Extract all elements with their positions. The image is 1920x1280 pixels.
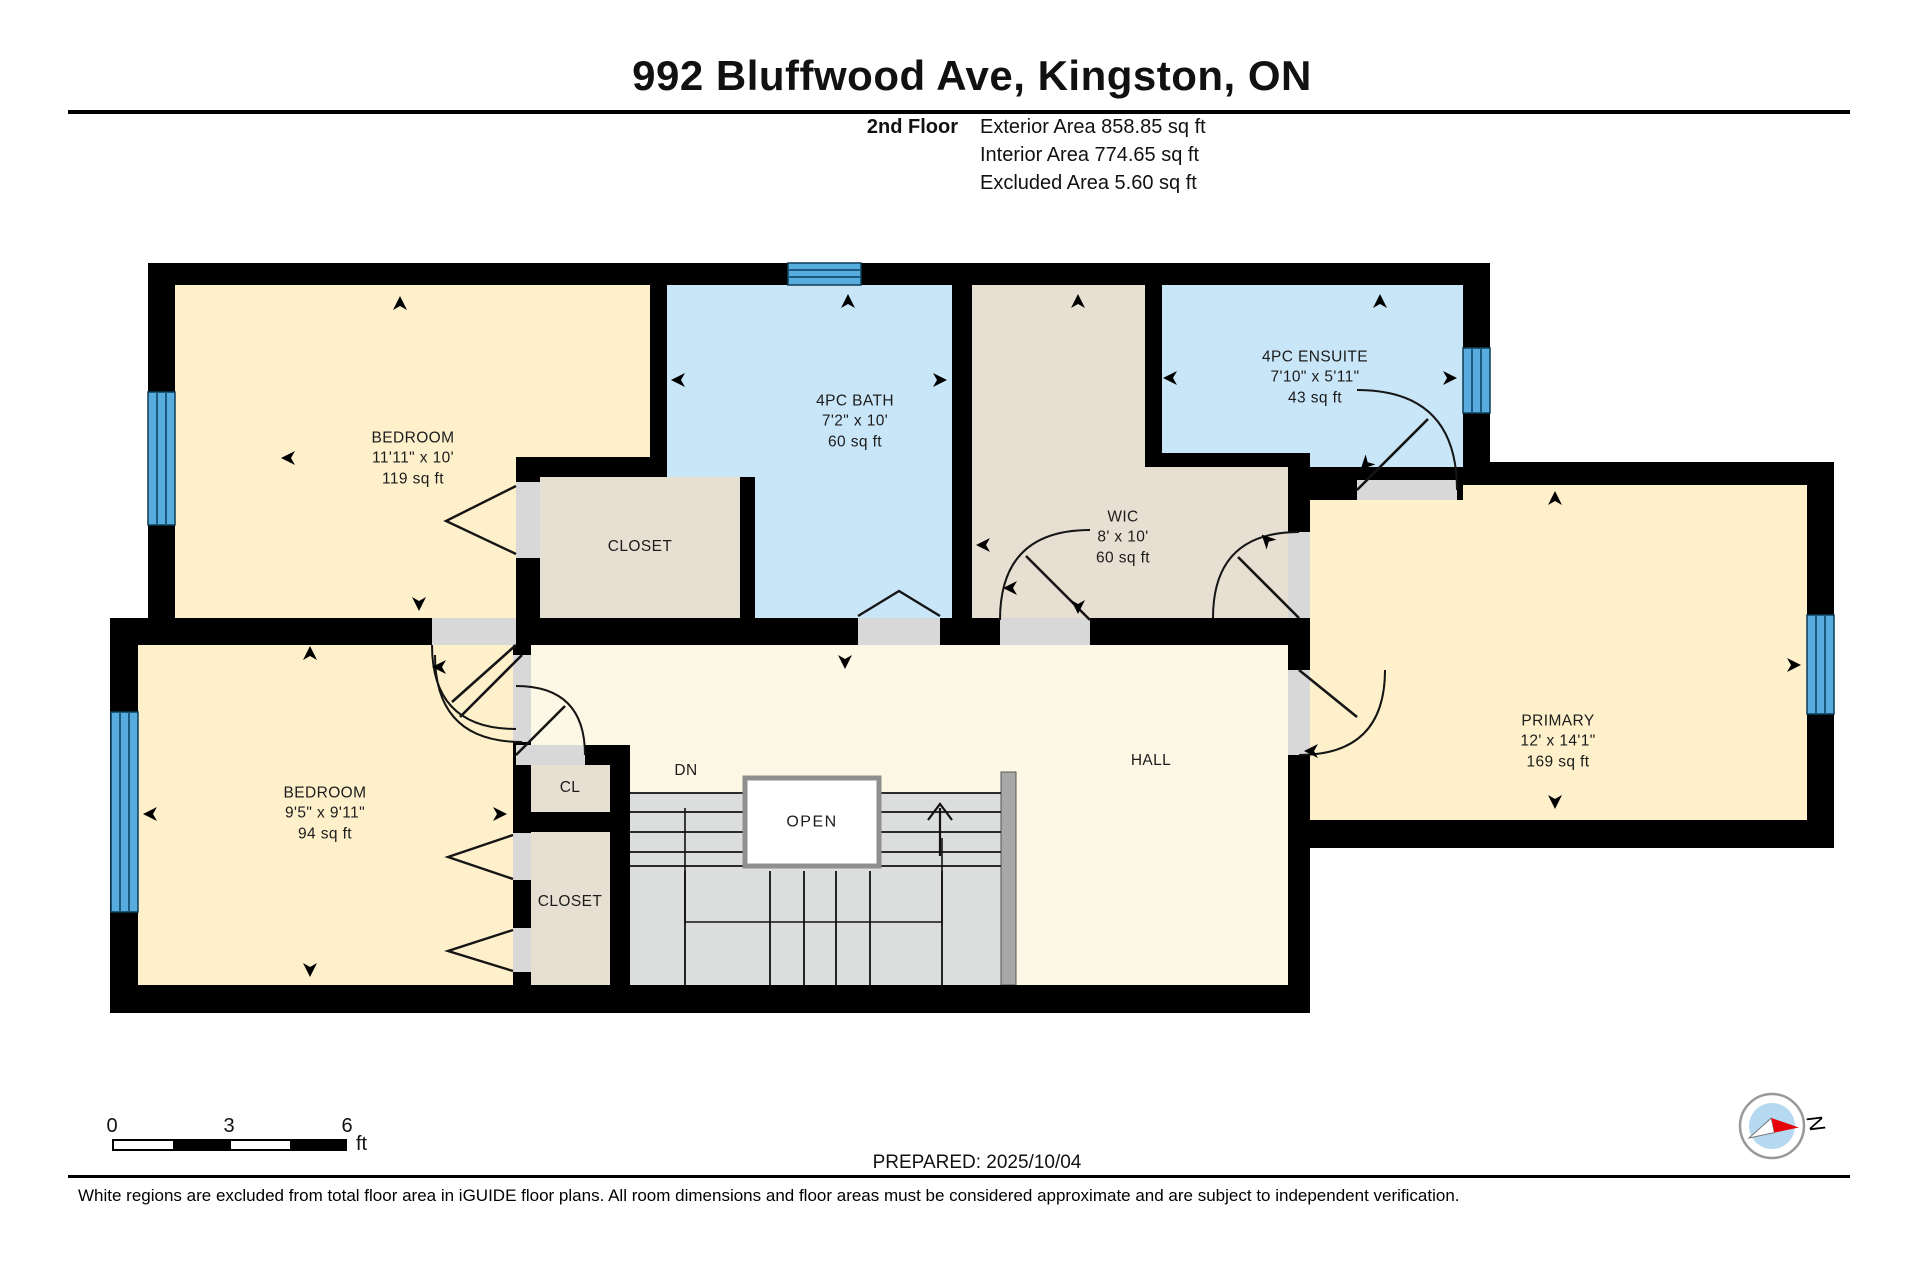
compass-north-label: N — [1802, 1112, 1831, 1135]
bath-window — [788, 263, 861, 285]
bedroom1-label: BEDROOM 11'11" x 10' 119 sq ft — [372, 428, 455, 489]
scale-mid: 3 — [223, 1115, 234, 1138]
wic-label: WIC 8' x 10' 60 sq ft — [1096, 507, 1150, 568]
compass-icon: N — [1740, 1094, 1830, 1158]
bedroom1-window — [148, 392, 175, 525]
stair-dn-label: DN — [674, 761, 697, 781]
staircase — [630, 772, 1016, 985]
disclaimer-text: White regions are excluded from total fl… — [78, 1186, 1460, 1206]
primary-label: PRIMARY 12' x 14'1" 169 sq ft — [1520, 711, 1595, 772]
scale-bar — [112, 1139, 347, 1151]
scale-unit: ft — [356, 1133, 367, 1156]
bath-label: 4PC BATH 7'2" x 10' 60 sq ft — [816, 391, 894, 452]
footer-divider — [68, 1175, 1850, 1178]
stair-open-label: OPEN — [786, 811, 837, 832]
hall-label: HALL — [1131, 751, 1171, 771]
bedroom1-door-gap — [432, 618, 516, 645]
closet-bifold-gap-2 — [513, 928, 531, 972]
bedroom2-window — [111, 712, 138, 912]
floor-plan: N — [0, 0, 1920, 1280]
wic-door-gap — [1000, 618, 1090, 645]
closet-upper-door-gap — [516, 482, 540, 558]
bedroom2-label: BEDROOM 9'5" x 9'11" 94 sq ft — [284, 783, 367, 844]
cl-label: CL — [560, 778, 581, 798]
closet-upper-label: CLOSET — [608, 537, 672, 557]
closet-lower-label: CLOSET — [538, 892, 602, 912]
primary-window — [1807, 615, 1834, 714]
scale-end: 6 — [341, 1115, 352, 1138]
closet-bifold-gap-1 — [513, 833, 531, 880]
bath-door-gap — [858, 618, 940, 645]
scale-start: 0 — [106, 1115, 117, 1138]
cl-door-gap — [516, 745, 585, 765]
ensuite-window — [1463, 348, 1490, 413]
hall-primary-door-gap — [1288, 670, 1310, 755]
ensuite-door-gap — [1357, 480, 1457, 500]
floorplan-page: 992 Bluffwood Ave, Kingston, ON 2nd Floo… — [0, 0, 1920, 1280]
stair-railing — [1001, 772, 1016, 985]
wic-primary-door-gap — [1288, 532, 1310, 618]
ensuite-label: 4PC ENSUITE 7'10" x 5'11" 43 sq ft — [1262, 347, 1368, 408]
prepared-date: PREPARED: 2025/10/04 — [873, 1152, 1082, 1174]
